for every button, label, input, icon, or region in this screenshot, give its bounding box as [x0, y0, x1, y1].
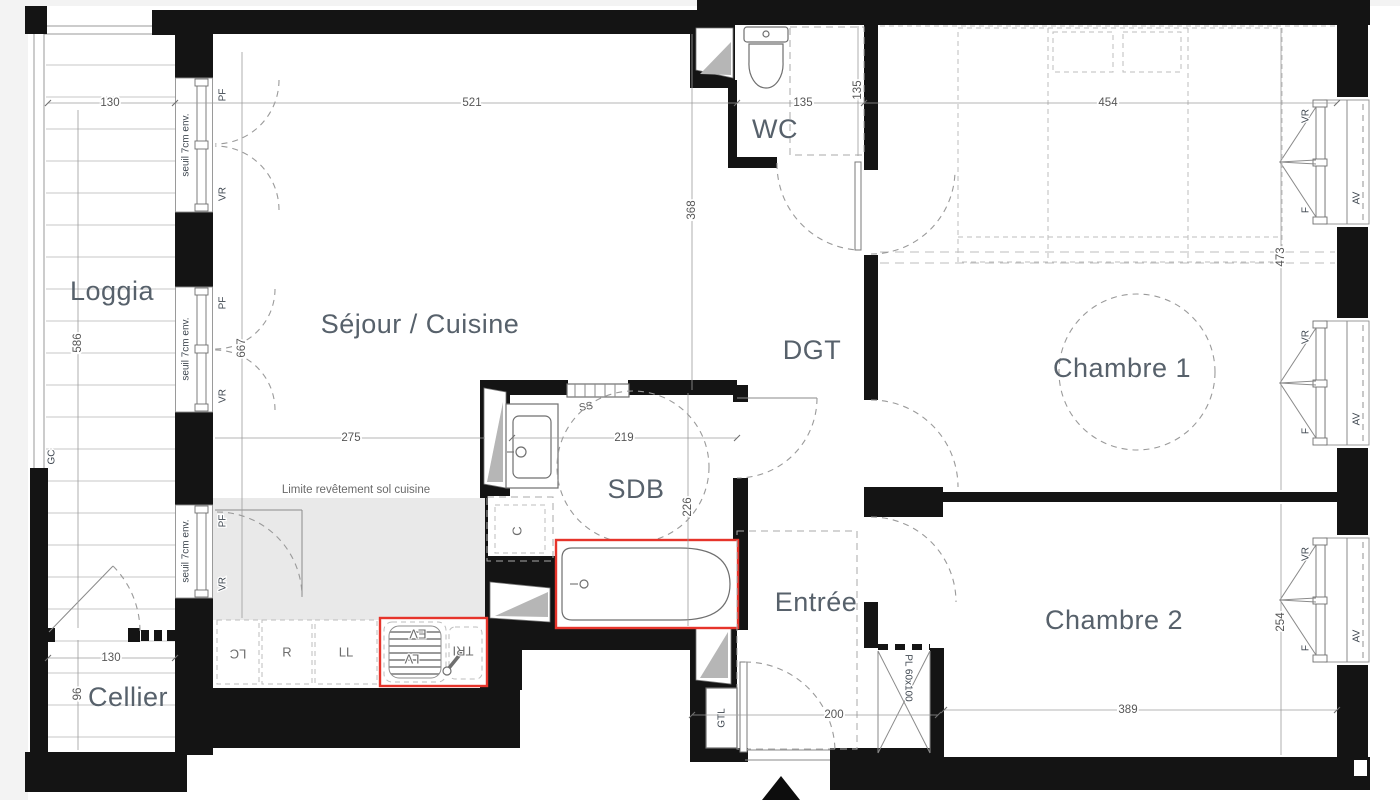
- window-right-1: VR F AV: [1280, 100, 1369, 224]
- room-label-cellier: Cellier: [88, 682, 168, 712]
- vr-label: VR: [218, 187, 229, 201]
- towel-radiator: [567, 384, 629, 397]
- av-label: AV: [1352, 412, 1363, 425]
- room-label-dgt: DGT: [783, 335, 842, 365]
- chambre1-furniture: [880, 26, 1335, 450]
- dim-chambre1-width: 454: [1098, 97, 1118, 109]
- pf-label: PF: [218, 297, 229, 310]
- room-label-sejour: Séjour / Cuisine: [321, 309, 520, 339]
- room-label-entree: Entrée: [775, 587, 858, 617]
- vr-label: VR: [218, 577, 229, 591]
- dim-wc-width: 135: [793, 97, 812, 109]
- dim-entree-width: 200: [824, 709, 843, 721]
- pl-closet-label: PL 60x100: [902, 654, 913, 702]
- av-label: AV: [1352, 191, 1363, 204]
- room-label-sdb: SDB: [607, 474, 664, 504]
- entry-door: [740, 662, 835, 760]
- seuil-label: seuil 7cm env.: [181, 317, 192, 380]
- room-label-chambre2: Chambre 2: [1045, 605, 1183, 635]
- unit-r-label: R: [282, 644, 291, 659]
- pillow: [1123, 32, 1181, 72]
- dim-cellier-width: 130: [101, 652, 120, 664]
- sdb-door: [737, 398, 817, 478]
- loggia-area: [34, 26, 176, 752]
- dim-chambre2-depth: 254: [1275, 612, 1287, 632]
- chambre2-door: [871, 517, 956, 602]
- kitchen-zone: Limite revêtement sol cuisine: [213, 484, 485, 620]
- shaft-sdb-bottom: [490, 582, 550, 622]
- kitchen-floor: [213, 498, 485, 620]
- window-right-3: VR F AV: [1280, 538, 1369, 662]
- vr-label: VR: [1301, 109, 1312, 123]
- kitchen-units: LC R LL EV LV TRI: [217, 618, 487, 686]
- sdb-closet: C: [487, 497, 553, 561]
- dim-chambre1-depth: 473: [1275, 247, 1287, 266]
- vr-label: VR: [1301, 330, 1312, 344]
- vr-label: VR: [218, 389, 229, 403]
- window-right-2: VR F AV: [1280, 321, 1369, 445]
- unit-lv-label: LV: [404, 652, 419, 667]
- dim-sdb-depth: 226: [682, 497, 694, 516]
- seuil-label: seuil 7cm env.: [181, 113, 192, 176]
- av-label: AV: [1352, 629, 1363, 642]
- f-label: F: [1301, 645, 1312, 651]
- unit-tri-label: TRI: [453, 644, 474, 659]
- unit-ll-label: LL: [339, 644, 353, 659]
- closet-c-label: C: [509, 526, 524, 535]
- room-label-loggia: Loggia: [70, 276, 155, 306]
- dim-sejour-width: 521: [462, 97, 481, 109]
- bed-outline: [958, 28, 1282, 262]
- dim-facade-height: 667: [236, 338, 248, 357]
- toilet-bowl: [749, 44, 783, 88]
- dim-wc-depth: 135: [852, 80, 864, 99]
- dim-sejour-height: 368: [686, 200, 698, 219]
- unit-ev-label: EV: [409, 627, 427, 642]
- pf-label: PF: [218, 89, 229, 102]
- loggia-rail-left: [34, 26, 44, 470]
- sink-faucet: [516, 447, 526, 457]
- chambre1-door: [871, 170, 955, 254]
- gc-label: GC: [47, 450, 58, 465]
- dim-kitchen-width: 275: [341, 432, 360, 444]
- floor-plan-page: Limite revêtement sol cuisine seuil 7cm …: [0, 0, 1400, 800]
- floor-plan: Limite revêtement sol cuisine seuil 7cm …: [0, 0, 1400, 800]
- loggia-decking: [46, 30, 176, 752]
- window-left-2: seuil 7cm env. PF VR: [176, 287, 276, 412]
- toilet-button: [763, 31, 769, 37]
- seuil-label: seuil 7cm env.: [181, 519, 192, 582]
- vr-label: VR: [1301, 547, 1312, 561]
- dim-loggia-width: 130: [100, 97, 119, 109]
- dim-sdb-width: 219: [614, 432, 633, 444]
- dim-chambre2-width: 389: [1118, 704, 1137, 716]
- entrance-arrow-icon: [762, 776, 800, 800]
- f-label: F: [1301, 207, 1312, 213]
- wc-door: [777, 162, 861, 250]
- unit-lc-label: LC: [230, 647, 247, 662]
- page-margin-left: [0, 0, 28, 800]
- room-label-chambre1: Chambre 1: [1053, 353, 1191, 383]
- kitchen-floor-note: Limite revêtement sol cuisine: [282, 484, 430, 496]
- dgt-door: [871, 400, 958, 487]
- window-left-1: seuil 7cm env. PF VR: [176, 78, 280, 212]
- f-label: F: [1301, 428, 1312, 434]
- room-label-wc: WC: [752, 114, 798, 144]
- gtl-label: GTL: [717, 708, 728, 728]
- shaft-sdb-top: [484, 388, 506, 488]
- shaft-wc: [696, 28, 733, 78]
- dim-loggia-height: 586: [72, 333, 84, 352]
- pf-label: PF: [218, 515, 229, 528]
- pillow: [1053, 32, 1113, 72]
- dim-cellier-height: 96: [72, 688, 84, 701]
- tub-faucet: [580, 580, 588, 588]
